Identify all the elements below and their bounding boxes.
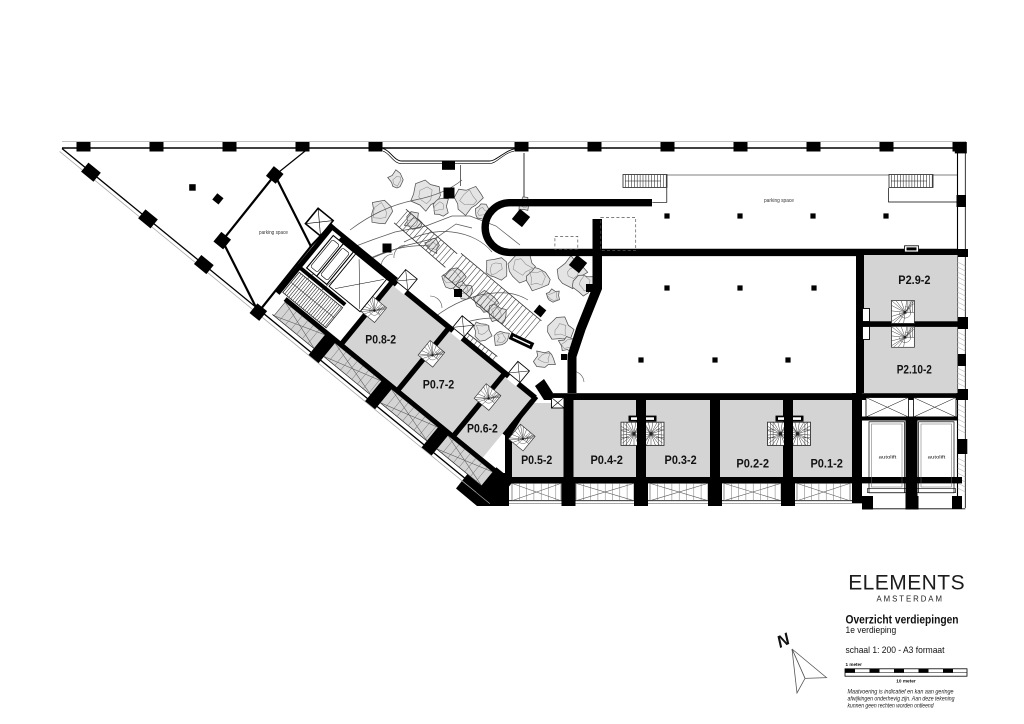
svg-text:AMSTERDAM: AMSTERDAM xyxy=(876,595,942,604)
svg-text:P0.6-2: P0.6-2 xyxy=(467,422,498,436)
svg-text:autolift: autolift xyxy=(928,455,947,460)
svg-text:P0.8-2: P0.8-2 xyxy=(365,333,396,347)
svg-text:parking space: parking space xyxy=(259,230,288,236)
svg-text:P0.3-2: P0.3-2 xyxy=(665,453,697,467)
svg-text:P2.10-2: P2.10-2 xyxy=(897,363,932,377)
svg-text:parking space: parking space xyxy=(764,198,794,204)
svg-text:kunnen geen rechten worden ont: kunnen geen rechten worden ontleend xyxy=(848,704,935,710)
svg-text:P0.2-2: P0.2-2 xyxy=(736,457,769,471)
svg-text:autolift: autolift xyxy=(879,455,898,460)
svg-text:Maatvoering is indicatief en k: Maatvoering is indicatief en kan aan ger… xyxy=(848,690,955,696)
svg-text:1e verdieping: 1e verdieping xyxy=(846,625,897,636)
svg-text:afwijkingen onderhevig zijn. A: afwijkingen onderhevig zijn. Aan deze te… xyxy=(848,697,956,703)
svg-text:P2.9-2: P2.9-2 xyxy=(898,273,930,287)
svg-text:P0.7-2: P0.7-2 xyxy=(423,378,455,392)
svg-text:1 meter: 1 meter xyxy=(846,662,863,668)
svg-text:10 meter: 10 meter xyxy=(896,679,916,685)
svg-text:schaal 1: 200 - A3 formaat: schaal 1: 200 - A3 formaat xyxy=(846,645,945,656)
svg-text:ELEMENTS: ELEMENTS xyxy=(848,572,964,595)
svg-text:P0.4-2: P0.4-2 xyxy=(590,453,623,467)
svg-text:P0.1-2: P0.1-2 xyxy=(810,457,843,471)
svg-text:P0.5-2: P0.5-2 xyxy=(521,453,552,467)
